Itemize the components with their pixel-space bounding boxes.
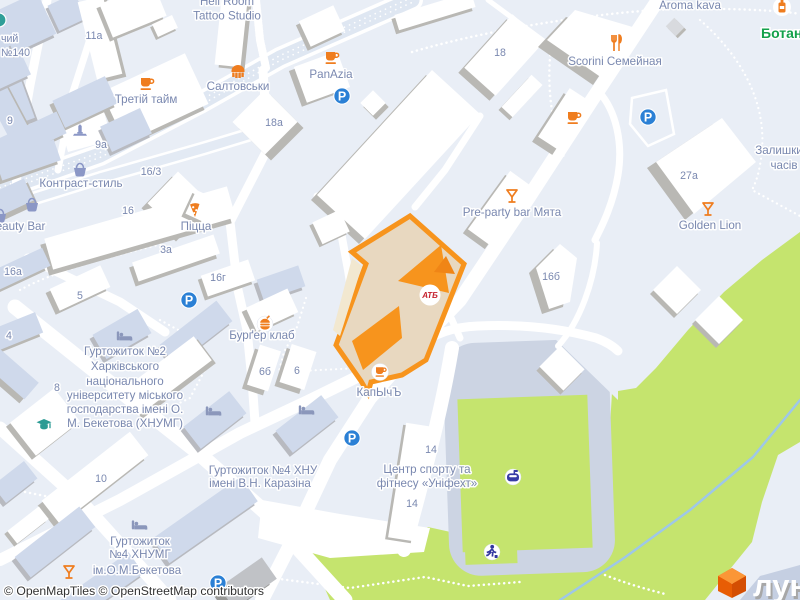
- svg-text:11а: 11а: [86, 30, 103, 42]
- svg-text:університету міського: університету міського: [67, 389, 183, 402]
- svg-text:8: 8: [54, 382, 60, 394]
- svg-text:© OpenMapTiles © OpenStreetMap: © OpenMapTiles © OpenStreetMap contribut…: [4, 584, 264, 598]
- svg-text:Golden Lion: Golden Lion: [679, 219, 742, 232]
- svg-text:Контраст-стиль: Контраст-стиль: [39, 177, 122, 190]
- svg-text:P: P: [644, 111, 652, 125]
- svg-text:16б: 16б: [542, 271, 560, 283]
- svg-text:чий: чий: [1, 33, 18, 45]
- svg-text:Гуртожиток: Гуртожиток: [110, 535, 171, 548]
- svg-text:PanAzia: PanAzia: [309, 68, 353, 81]
- svg-text:КапЫчЪ: КапЫчЪ: [357, 386, 402, 399]
- svg-text:16: 16: [122, 205, 134, 217]
- svg-text:P: P: [338, 90, 346, 104]
- svg-text:9: 9: [7, 115, 13, 127]
- svg-text:Залишки: Залишки: [755, 144, 800, 157]
- svg-text:№140: №140: [1, 47, 30, 59]
- svg-text:10: 10: [95, 473, 107, 485]
- svg-text:18: 18: [494, 47, 506, 59]
- svg-text:М. Бекетова (ХНУМГ): М. Бекетова (ХНУМГ): [67, 417, 183, 430]
- svg-text:9а: 9а: [95, 139, 107, 151]
- svg-text:6: 6: [294, 365, 300, 377]
- svg-text:18а: 18а: [265, 117, 283, 129]
- svg-text:ім.О.М.Бекетова: ім.О.М.Бекетова: [93, 564, 182, 577]
- svg-text:Scorini Семейная: Scorini Семейная: [568, 55, 662, 68]
- svg-text:16/3: 16/3: [141, 166, 162, 178]
- svg-text:Ботан: Ботан: [761, 25, 800, 41]
- svg-text:Tattoo Studio: Tattoo Studio: [193, 10, 261, 23]
- svg-text:Центр спорту та: Центр спорту та: [383, 463, 471, 476]
- svg-text:Aroma kava: Aroma kava: [659, 0, 721, 12]
- svg-text:Гуртожиток №2: Гуртожиток №2: [84, 345, 166, 358]
- svg-text:Бурґер клаб: Бурґер клаб: [229, 329, 295, 342]
- svg-text:3а: 3а: [160, 244, 172, 256]
- svg-text:5: 5: [77, 290, 83, 302]
- svg-text:Салтовськи: Салтовськи: [207, 80, 270, 93]
- svg-text:лун: лун: [753, 568, 800, 600]
- svg-text:Харківського: Харківського: [91, 360, 159, 373]
- svg-text:імені В.Н. Каразіна: імені В.Н. Каразіна: [209, 477, 311, 490]
- svg-text:27а: 27а: [680, 170, 698, 182]
- svg-text:14: 14: [406, 498, 418, 510]
- svg-text:6б: 6б: [259, 366, 271, 378]
- svg-text:часів: часів: [770, 159, 797, 172]
- svg-text:P: P: [348, 432, 356, 446]
- svg-text:Hell Room: Hell Room: [200, 0, 254, 8]
- svg-text:Pre-party bar Мята: Pre-party bar Мята: [463, 206, 562, 219]
- svg-text:АТБ: АТБ: [421, 291, 438, 300]
- svg-text:Гуртожиток №4 ХНУ: Гуртожиток №4 ХНУ: [209, 464, 318, 477]
- svg-text:Beauty Bar: Beauty Bar: [0, 220, 45, 233]
- svg-text:національного: національного: [86, 375, 163, 388]
- svg-text:господарства імені О.: господарства імені О.: [67, 403, 184, 416]
- svg-text:фітнесу «Уніфехт»: фітнесу «Уніфехт»: [377, 477, 478, 490]
- svg-text:16г: 16г: [210, 272, 226, 284]
- svg-text:Третій тайм: Третій тайм: [115, 93, 178, 106]
- svg-text:4: 4: [6, 330, 12, 342]
- svg-text:16а: 16а: [4, 266, 22, 278]
- svg-text:Піцца: Піцца: [181, 220, 212, 233]
- svg-text:P: P: [185, 294, 193, 308]
- svg-text:№4 ХНУМГ: №4 ХНУМГ: [109, 548, 171, 561]
- svg-text:14: 14: [425, 444, 437, 456]
